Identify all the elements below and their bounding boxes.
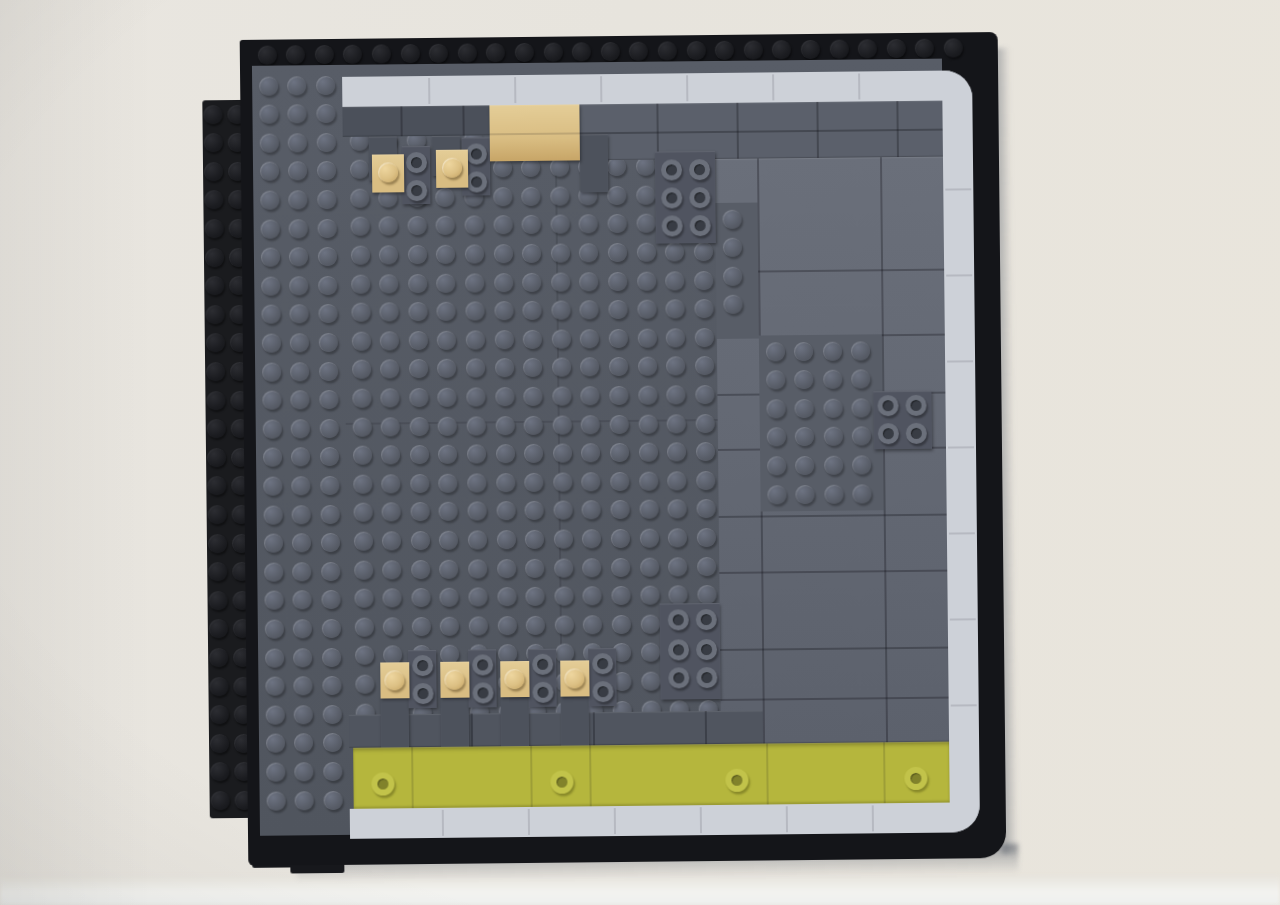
- plate-stud: [266, 762, 285, 781]
- plate-stud: [320, 476, 339, 495]
- black-stud: [204, 248, 223, 267]
- plate-stud: [319, 361, 338, 380]
- plate-stud: [316, 75, 335, 94]
- plate-stud: [321, 590, 340, 609]
- white-border-seam: [600, 76, 602, 102]
- black-stud: [206, 391, 225, 410]
- white-border-seam: [428, 78, 430, 104]
- black-stud: [205, 333, 224, 352]
- plate-stud: [259, 76, 278, 95]
- white-border-seam: [700, 807, 702, 833]
- black-stud: [206, 419, 225, 438]
- plate-stud: [265, 648, 284, 667]
- plate-stud: [264, 619, 283, 638]
- plate-stud: [266, 791, 285, 810]
- black-stud: [206, 362, 225, 381]
- plate-stud: [318, 247, 337, 266]
- plate-stud: [265, 734, 284, 753]
- frame-stud: [314, 44, 333, 63]
- black-stud: [209, 705, 228, 724]
- plate-stud: [287, 76, 306, 95]
- plate-stud: [260, 219, 279, 238]
- frame-stud: [600, 41, 619, 60]
- plate-stud: [318, 276, 337, 295]
- black-stud: [207, 505, 226, 524]
- black-stud: [203, 105, 222, 124]
- white-border-seam: [950, 618, 976, 620]
- white-border-seam: [945, 188, 971, 190]
- plate-stud: [264, 591, 283, 610]
- lego-mosaic-wall-photo: [0, 0, 1280, 905]
- plate-stud: [288, 190, 307, 209]
- frame-stud: [772, 40, 791, 59]
- white-border-seam: [528, 809, 530, 835]
- black-stud: [209, 677, 228, 696]
- frame-stud: [801, 39, 820, 58]
- frame-stud: [629, 41, 648, 60]
- black-stud: [205, 305, 224, 324]
- frame-stud: [543, 42, 562, 61]
- black-stud: [210, 762, 229, 781]
- plate-stud: [291, 476, 310, 495]
- plate-stud: [260, 190, 279, 209]
- plate-stud: [321, 619, 340, 638]
- frame-stud: [343, 44, 362, 63]
- frame-stud: [486, 43, 505, 62]
- plate-stud: [319, 419, 338, 438]
- plate-stud: [265, 677, 284, 696]
- white-border-seam: [686, 75, 688, 101]
- plate-stud: [293, 648, 312, 667]
- plate-stud: [263, 476, 282, 495]
- plate-stud: [317, 161, 336, 180]
- frame-stud: [886, 38, 905, 57]
- plate-stud: [289, 219, 308, 238]
- plate-stud: [294, 762, 313, 781]
- black-stud: [210, 791, 229, 810]
- plate-stud: [322, 647, 341, 666]
- plate-stud: [322, 676, 341, 695]
- plate-stud: [323, 762, 342, 781]
- plate-stud: [294, 705, 313, 724]
- black-stud: [208, 619, 227, 638]
- black-stud: [203, 133, 222, 152]
- plate-stud: [262, 362, 281, 381]
- plate-stud: [263, 505, 282, 524]
- frame-stud: [286, 45, 305, 64]
- black-stud: [208, 562, 227, 581]
- frame-stud: [257, 45, 276, 64]
- plate-stud: [263, 534, 282, 553]
- white-border-seam: [951, 704, 977, 706]
- plate-stud: [295, 791, 314, 810]
- plate-stud: [320, 447, 339, 466]
- black-stud: [207, 476, 226, 495]
- plate-stud: [323, 790, 342, 809]
- frame-stud: [915, 38, 934, 57]
- plate-stud: [262, 448, 281, 467]
- frame-stud: [572, 42, 591, 61]
- frame-stud: [715, 40, 734, 59]
- white-border-seam: [947, 360, 973, 362]
- frame-stud: [429, 43, 448, 62]
- frame-stud: [457, 43, 476, 62]
- white-border-seam: [949, 532, 975, 534]
- plate-stud: [292, 505, 311, 524]
- plate-stud: [321, 533, 340, 552]
- white-border-seam: [514, 77, 516, 103]
- plate-stud: [319, 390, 338, 409]
- plate-stud: [259, 105, 278, 124]
- black-stud: [209, 734, 228, 753]
- plate-stud: [261, 276, 280, 295]
- white-border-seam: [872, 805, 874, 831]
- white-border-seam: [946, 274, 972, 276]
- frame-stud: [515, 42, 534, 61]
- white-border-seam: [442, 810, 444, 836]
- plate-stud: [290, 362, 309, 381]
- plate-stud: [322, 705, 341, 724]
- black-stud: [204, 190, 223, 209]
- plate-stud: [259, 162, 278, 181]
- plate-stud: [316, 133, 335, 152]
- white-border: [342, 70, 980, 839]
- plate-stud: [290, 333, 309, 352]
- plate-stud: [317, 218, 336, 237]
- plate-stud: [293, 619, 312, 638]
- white-border-seam: [858, 73, 860, 99]
- frame-stud: [944, 38, 963, 57]
- plate-stud: [262, 391, 281, 410]
- frame-stud: [829, 39, 848, 58]
- plate-stud: [261, 333, 280, 352]
- frame-stud: [400, 44, 419, 63]
- frame-stud: [372, 44, 391, 63]
- black-stud: [208, 591, 227, 610]
- plate-stud: [318, 333, 337, 352]
- lego-build: [0, 0, 1280, 905]
- plate-stud: [264, 562, 283, 581]
- black-stud: [207, 534, 226, 553]
- plate-stud: [288, 133, 307, 152]
- frame-stud: [743, 40, 762, 59]
- plate-stud: [259, 133, 278, 152]
- plate-stud: [318, 304, 337, 323]
- frame-stud: [658, 41, 677, 60]
- plate-stud: [289, 276, 308, 295]
- plate-stud: [291, 419, 310, 438]
- plate-stud: [320, 504, 339, 523]
- white-border-seam: [786, 806, 788, 832]
- plate-stud: [261, 305, 280, 324]
- plate-stud: [323, 733, 342, 752]
- black-stud: [209, 648, 228, 667]
- black-stud: [206, 448, 225, 467]
- black-stud: [203, 162, 222, 181]
- plate-stud: [265, 705, 284, 724]
- plate-stud: [317, 190, 336, 209]
- white-border-seam: [614, 808, 616, 834]
- frame-stud: [686, 41, 705, 60]
- plate-stud: [316, 104, 335, 123]
- white-border-seam: [948, 446, 974, 448]
- white-border-seam: [772, 74, 774, 100]
- plate-stud: [321, 562, 340, 581]
- plate-stud: [292, 562, 311, 581]
- frame-stud: [858, 39, 877, 58]
- black-stud: [205, 276, 224, 295]
- plate-stud: [262, 419, 281, 438]
- black-stud: [204, 219, 223, 238]
- plate-stud: [260, 248, 279, 267]
